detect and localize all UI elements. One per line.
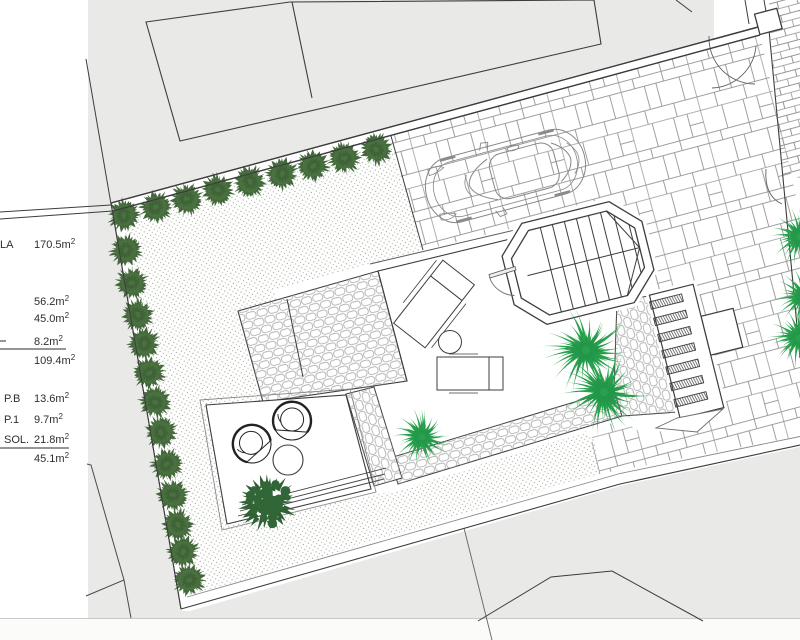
svg-text:21.8m2: 21.8m2 bbox=[34, 432, 70, 446]
svg-text:109.4m2: 109.4m2 bbox=[34, 353, 76, 367]
svg-text:13.6m2: 13.6m2 bbox=[34, 391, 70, 405]
svg-text:P.1: P.1 bbox=[4, 414, 19, 426]
svg-text:45.1m2: 45.1m2 bbox=[34, 451, 70, 465]
svg-text:LA: LA bbox=[0, 239, 14, 251]
svg-text:56.2m2: 56.2m2 bbox=[34, 294, 70, 308]
svg-text:P.B: P.B bbox=[4, 393, 20, 405]
svg-text:SOL.: SOL. bbox=[4, 434, 29, 446]
svg-text:45.0m2: 45.0m2 bbox=[34, 311, 70, 325]
svg-text:170.5m2: 170.5m2 bbox=[34, 237, 76, 251]
